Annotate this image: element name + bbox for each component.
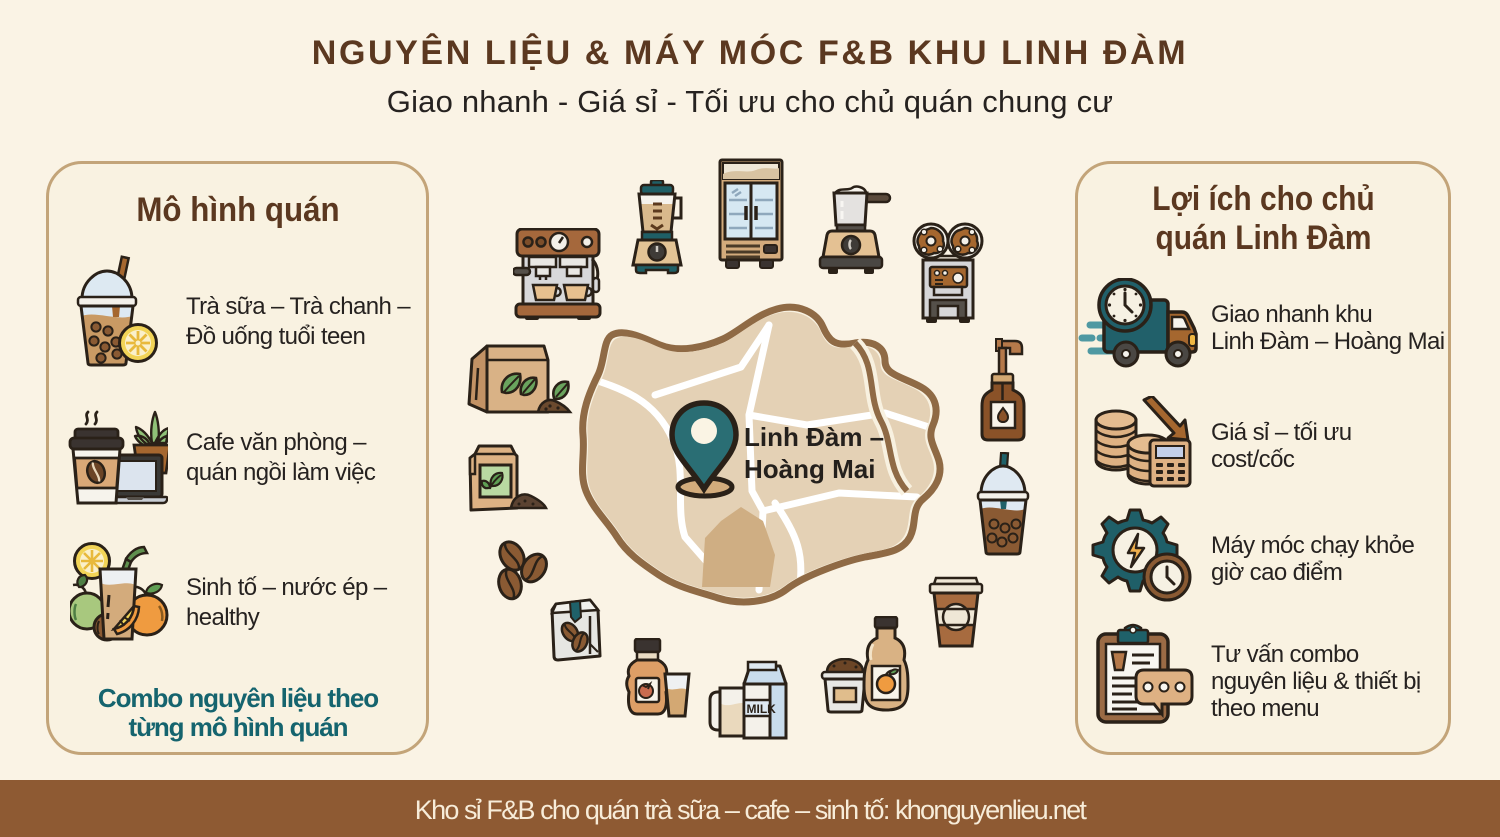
svg-text:MILK: MILK — [747, 702, 777, 716]
